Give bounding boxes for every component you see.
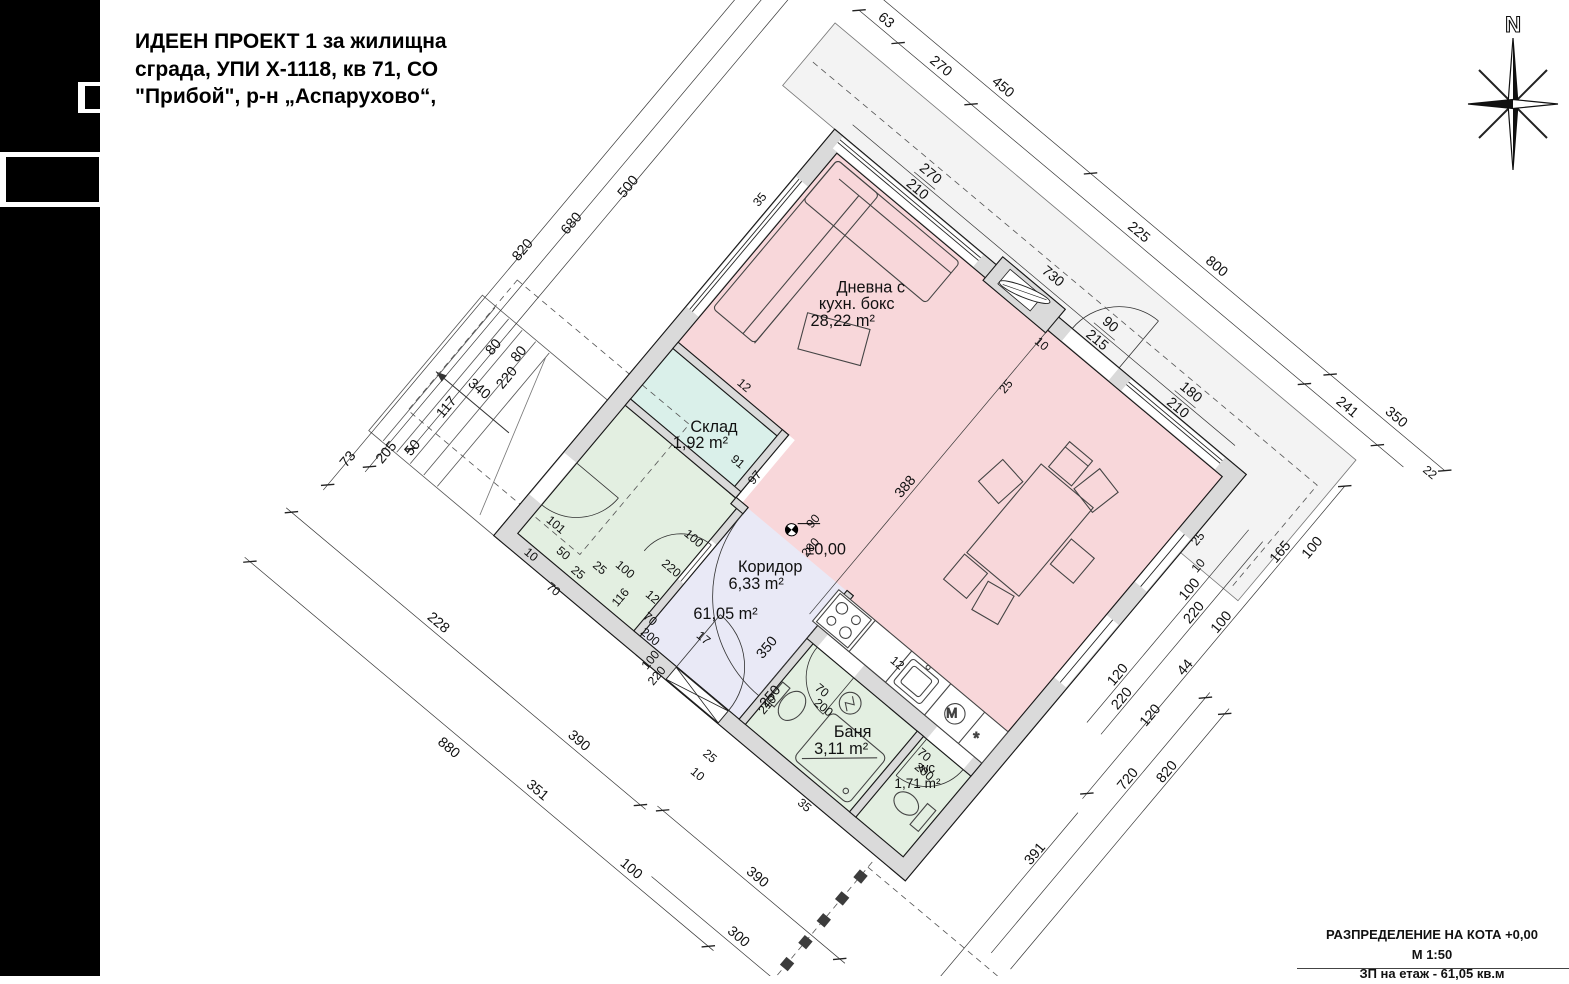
dim-500: 500: [615, 173, 643, 202]
dim-450: 450: [989, 74, 1018, 102]
dim-10b: 10: [688, 764, 708, 784]
floorplan-page: { "title": { "line1": "ИДЕЕН ПРОЕКТ 1 за…: [0, 0, 1569, 976]
living-name-1: Дневна с: [836, 279, 905, 297]
dim-720: 720: [1114, 765, 1142, 794]
dim-820b: 820: [1153, 758, 1181, 787]
corridor-name: Коридор: [738, 558, 802, 576]
dim-r120: 120: [1104, 661, 1132, 690]
dim-350: 350: [1382, 404, 1411, 432]
north-compass-icon: N: [1468, 12, 1558, 170]
dim-228: 228: [424, 609, 453, 637]
footer-distribution: РАЗПРЕДЕЛЕНИЕ НА КОТА +0,00: [1295, 925, 1569, 945]
dim-25d: 25: [700, 746, 720, 766]
appliance-star: *: [973, 729, 980, 747]
living-area: 28,22 m²: [811, 312, 876, 330]
footer-rule: [1297, 968, 1569, 969]
dim-880: 880: [434, 734, 463, 762]
dim-351: 351: [523, 777, 552, 805]
north-label: N: [1505, 12, 1521, 37]
storage-area: 1,92 m²: [673, 434, 729, 452]
dim-r220: 220: [1180, 599, 1208, 628]
wc-area: 1,71 m²: [894, 776, 941, 791]
living-name-2: кухн. бокс: [819, 295, 895, 313]
bath-area: 3,11 m²: [814, 740, 869, 758]
dim-44: 44: [1174, 656, 1196, 678]
corridor-area: 6,33 m²: [729, 575, 785, 593]
dim-r100b: 100: [1299, 534, 1327, 563]
dim-391: 391: [1021, 840, 1049, 869]
dim-270: 270: [926, 53, 955, 81]
footer-floor-area: ЗП на етаж - 61,05 кв.м: [1295, 964, 1569, 984]
level-label: ±0,00: [805, 541, 846, 559]
washer-label: М: [946, 705, 957, 720]
property-boundary: [729, 859, 1094, 976]
dim-225: 225: [1124, 219, 1153, 247]
floor-plan: М *: [214, 0, 1534, 976]
dim-390: 390: [743, 864, 772, 892]
bath-name: Баня: [834, 723, 872, 741]
drawing-footer: РАЗПРЕДЕЛЕНИЕ НА КОТА +0,00 М 1:50 ЗП на…: [1295, 925, 1569, 984]
dim-300: 300: [724, 923, 753, 951]
dim-r220b: 220: [1108, 684, 1136, 713]
dim-73: 73: [337, 448, 359, 470]
dim-390b: 390: [565, 727, 594, 755]
dim-r100: 100: [1176, 575, 1204, 604]
dim-100g: 100: [617, 855, 646, 883]
wc-name: wc: [917, 761, 935, 776]
floor-area-label: 61,05 m²: [693, 605, 758, 623]
redaction-bars: [0, 0, 100, 976]
dim-35: 35: [750, 190, 770, 210]
dim-22: 22: [1420, 463, 1440, 483]
footer-scale: М 1:50: [1295, 945, 1569, 965]
dim-r100c: 100: [1208, 608, 1236, 637]
dim-800: 800: [1202, 253, 1231, 281]
dim-63: 63: [875, 9, 897, 31]
storage-name: Склад: [690, 418, 738, 436]
dim-241: 241: [1333, 394, 1362, 422]
drawing-canvas: М *: [0, 0, 1569, 976]
